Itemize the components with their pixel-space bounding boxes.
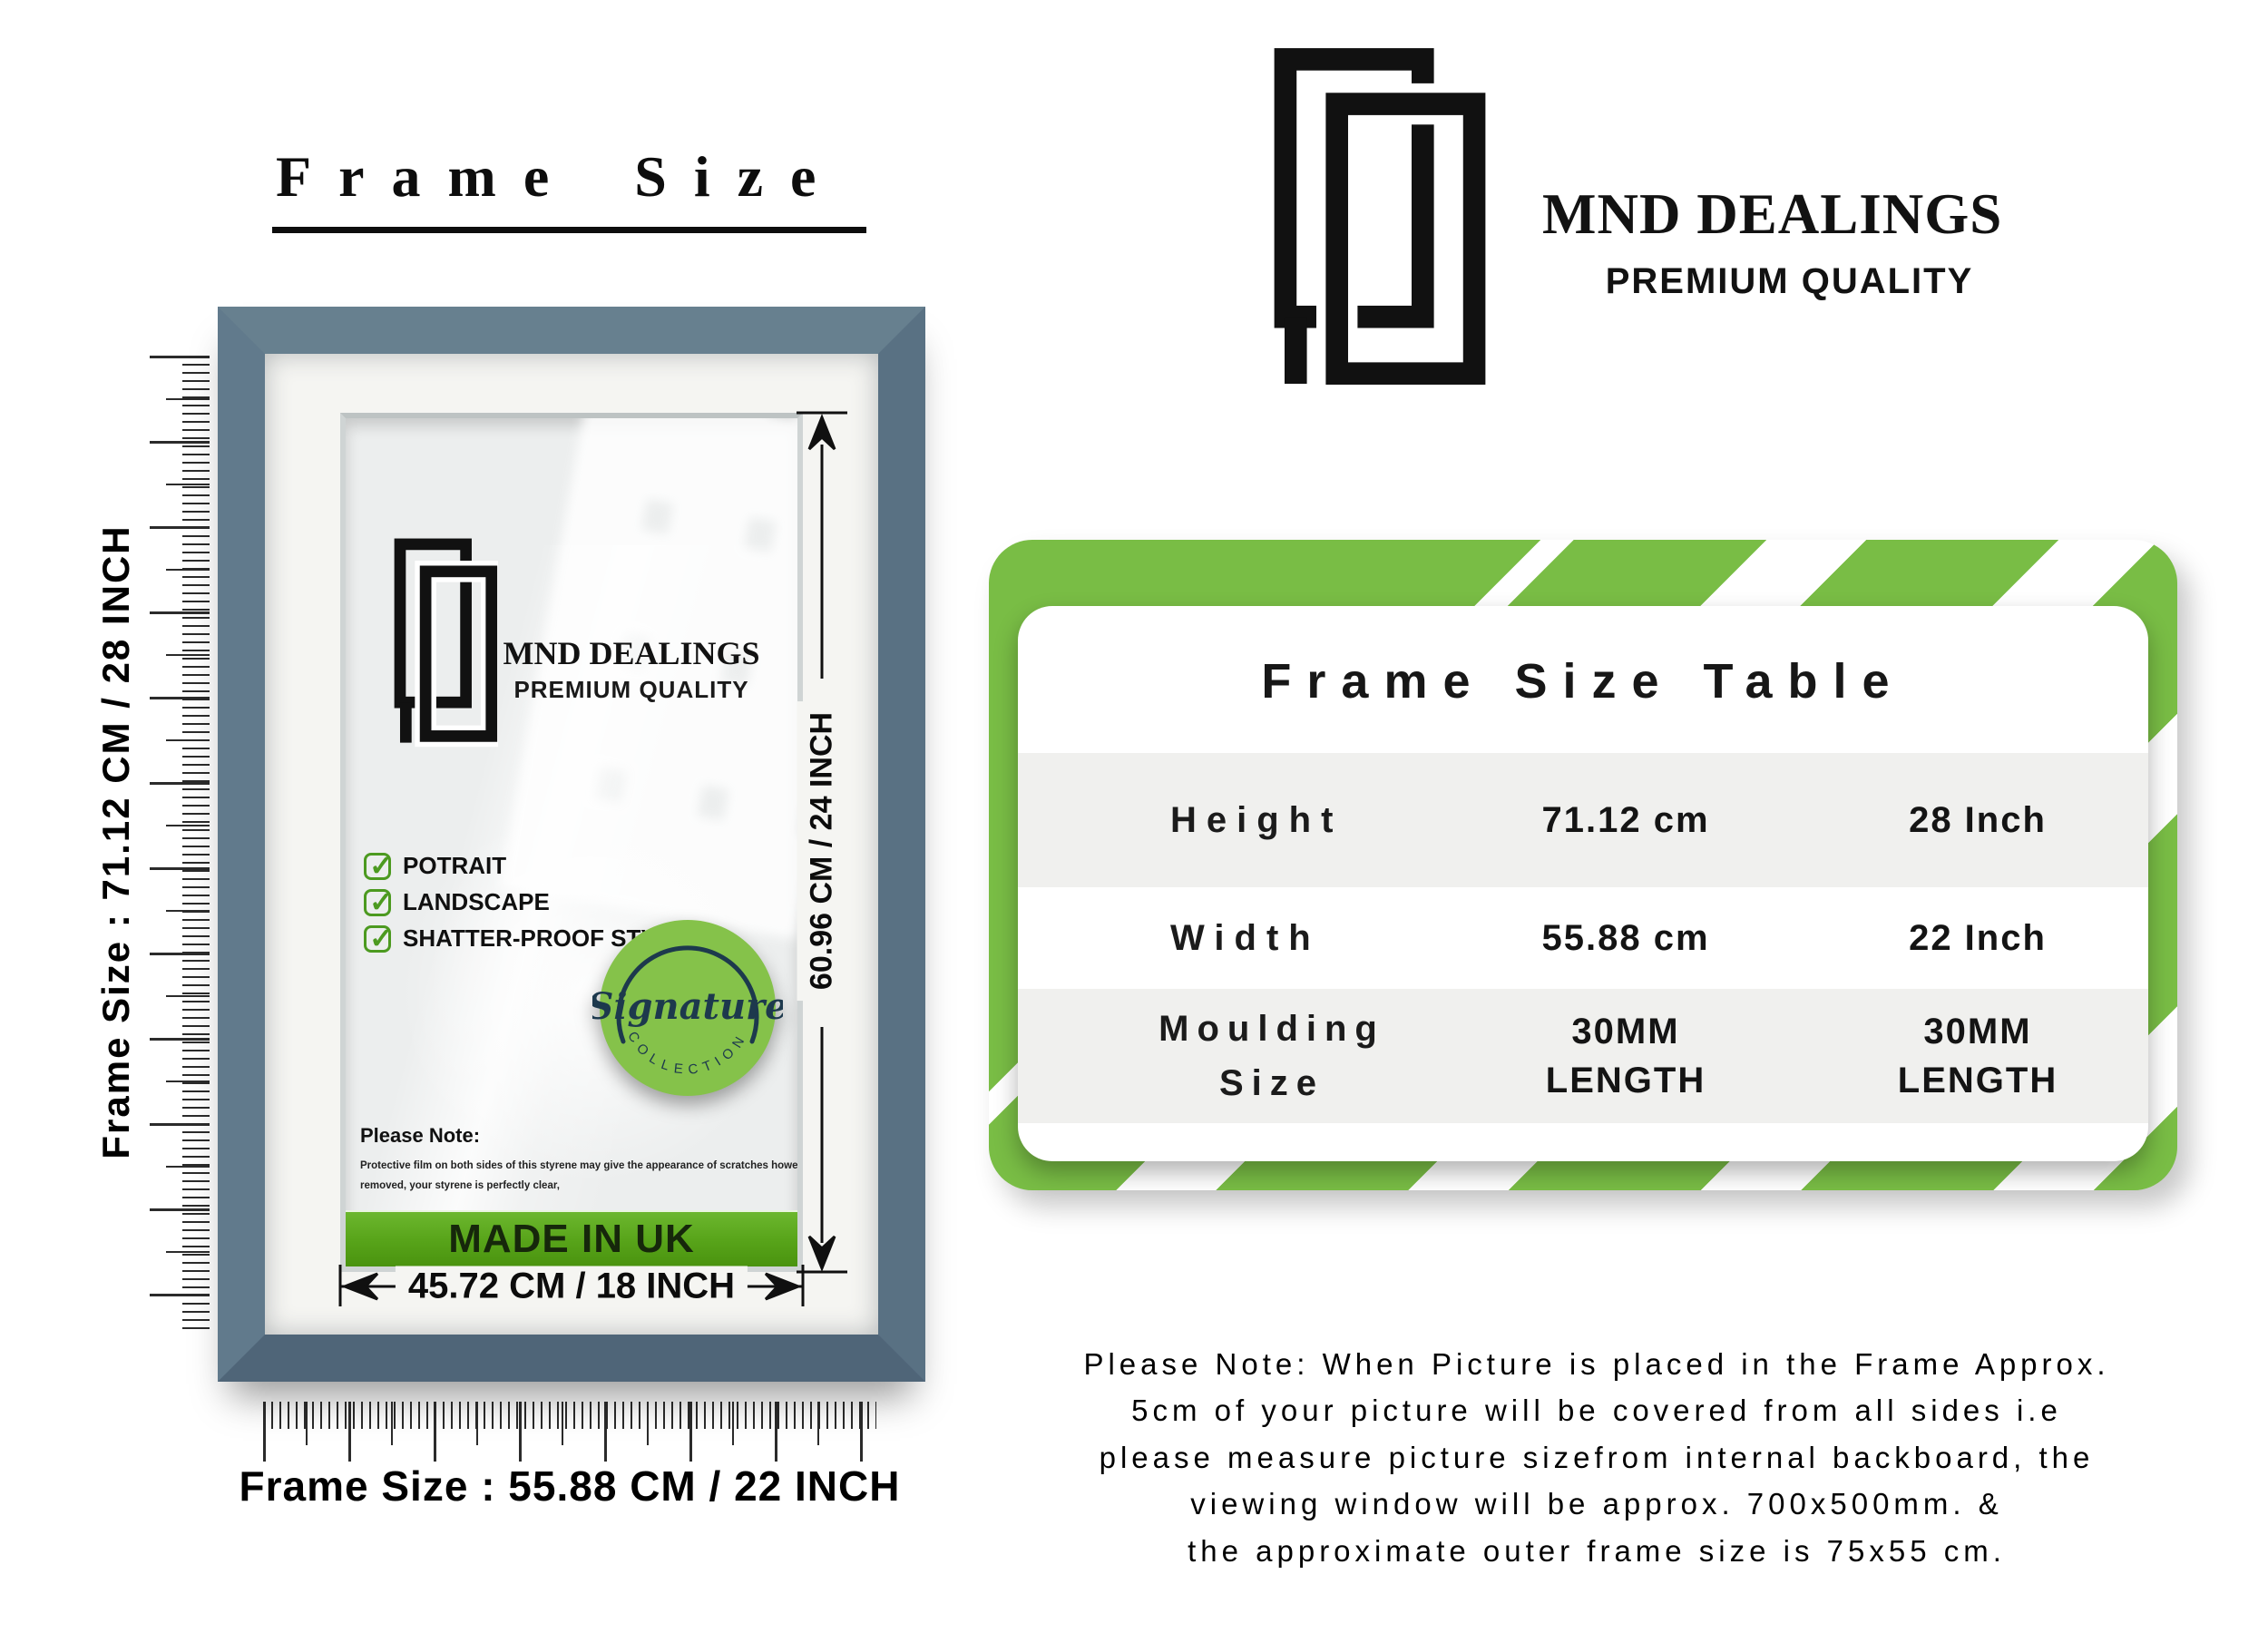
page-title: Frame Size xyxy=(272,143,866,233)
inner-brand-block: MND DEALINGS PREMIUM QUALITY xyxy=(491,634,772,704)
styrene-note-line: Protective film on both sides of this st… xyxy=(360,1157,803,1177)
footer-note: Please Note: When Picture is placed in t… xyxy=(1007,1341,2186,1574)
row-metric-value: 30MM LENGTH xyxy=(1530,1007,1721,1105)
row-imperial-value: 22 Inch xyxy=(1807,914,2148,963)
row-label: Width xyxy=(1018,918,1444,959)
size-table-inner-card: Frame Size Table Height 71.12 cm 28 Inch… xyxy=(1018,606,2148,1161)
feature-label: POTRAIT xyxy=(403,852,506,880)
checkbox-check-icon xyxy=(364,889,391,916)
row-imperial-value: 30MM LENGTH xyxy=(1882,1007,2073,1105)
inner-brand-name: MND DEALINGS xyxy=(491,634,772,672)
frame-height-label: Frame Size : 71.12 CM / 28 INCH xyxy=(94,524,138,1159)
table-row-moulding: Moulding Size 30MM LENGTH 30MM LENGTH xyxy=(1018,989,2148,1123)
footer-note-line: the approximate outer frame size is 75x5… xyxy=(1007,1528,2186,1574)
brand-name: MND DEALINGS xyxy=(1542,181,2002,248)
frames-logo-icon xyxy=(391,536,498,756)
frame-glass: MND DEALINGS PREMIUM QUALITY POTRAIT LAN… xyxy=(340,413,803,1272)
table-row-height: Height 71.12 cm 28 Inch xyxy=(1018,753,2148,887)
checkbox-check-icon xyxy=(364,853,391,880)
vertical-ruler xyxy=(150,356,210,1332)
made-in-uk-banner: MADE IN UK xyxy=(346,1210,797,1266)
row-metric-value: 71.12 cm xyxy=(1444,796,1807,845)
footer-note-line: viewing window will be approx. 700x500mm… xyxy=(1007,1481,2186,1527)
frame-width-label: Frame Size : 55.88 CM / 22 INCH xyxy=(240,1462,901,1511)
frames-logo-icon xyxy=(1268,47,1491,403)
frame-size-infographic: Frame Size Frame Size : 71.12 CM / 28 IN… xyxy=(0,0,2268,1633)
styrene-note: Please Note: Protective film on both sid… xyxy=(360,1124,803,1197)
glass-height-dimension: 60.96 CM / 24 INCH xyxy=(797,701,847,1001)
inner-brand-tagline: PREMIUM QUALITY xyxy=(491,676,772,704)
row-metric-value: 55.88 cm xyxy=(1444,914,1807,963)
size-table-title: Frame Size Table xyxy=(1018,606,2148,709)
brand-tagline: PREMIUM QUALITY xyxy=(1542,261,2037,302)
feature-label: LANDSCAPE xyxy=(403,888,550,916)
styrene-note-title: Please Note: xyxy=(360,1124,803,1148)
row-label: Moulding Size xyxy=(1018,1002,1426,1110)
row-label: Height xyxy=(1018,800,1444,841)
feature-row: POTRAIT xyxy=(364,852,722,880)
footer-note-line: Please Note: When Picture is placed in t… xyxy=(1007,1341,2186,1387)
picture-frame: MND DEALINGS PREMIUM QUALITY POTRAIT LAN… xyxy=(218,307,925,1382)
size-table-card: Frame Size Table Height 71.12 cm 28 Inch… xyxy=(989,540,2177,1190)
footer-note-line: 5cm of your picture will be covered from… xyxy=(1007,1387,2186,1433)
horizontal-ruler xyxy=(263,1402,876,1462)
badge-word: Signature xyxy=(592,985,783,1028)
footer-note-line: please measure picture sizefrom internal… xyxy=(1007,1434,2186,1481)
row-imperial-value: 28 Inch xyxy=(1807,796,2148,845)
glass-width-dimension: 45.72 CM / 18 INCH xyxy=(396,1266,748,1307)
checkbox-check-icon xyxy=(364,925,391,953)
table-row-width: Width 55.88 cm 22 Inch xyxy=(1018,887,2148,989)
styrene-note-line: removed, your styrene is perfectly clear… xyxy=(360,1177,803,1197)
signature-collection-badge: Signature COLLECTION xyxy=(592,913,783,1103)
